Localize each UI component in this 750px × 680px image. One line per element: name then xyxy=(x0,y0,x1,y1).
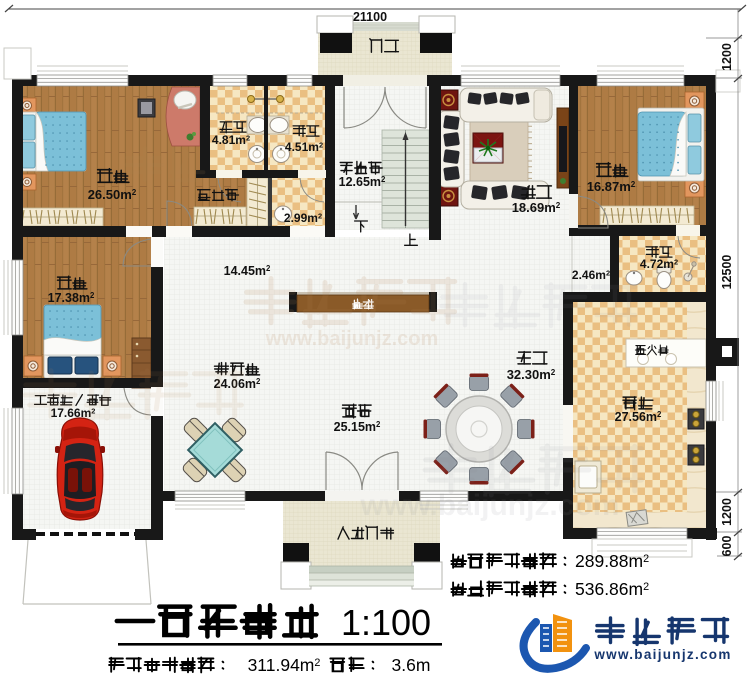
svg-text:21100: 21100 xyxy=(353,10,387,24)
svg-text:12.65m2: 12.65m2 xyxy=(339,175,386,189)
svg-text:2.46m2: 2.46m2 xyxy=(572,268,610,282)
svg-text:311.94m2: 311.94m2 xyxy=(248,655,321,675)
svg-text:289.88m2: 289.88m2 xyxy=(575,551,649,571)
svg-text:3.6m: 3.6m xyxy=(392,655,431,675)
svg-text:2.99m2: 2.99m2 xyxy=(284,211,322,225)
svg-text:32.30m2: 32.30m2 xyxy=(507,367,556,382)
svg-text:14.45m2: 14.45m2 xyxy=(224,264,271,278)
svg-text:17.38m2: 17.38m2 xyxy=(48,291,95,305)
svg-text:16.87m2: 16.87m2 xyxy=(587,179,636,194)
svg-text:600: 600 xyxy=(720,536,734,557)
svg-text:www.baijunjz.com: www.baijunjz.com xyxy=(265,328,439,350)
svg-text:1200: 1200 xyxy=(720,43,734,71)
svg-text:536.86m2: 536.86m2 xyxy=(575,579,649,599)
svg-text:12500: 12500 xyxy=(720,255,734,290)
svg-text:1:100: 1:100 xyxy=(341,602,431,643)
svg-text:www.baijunjz.com: www.baijunjz.com xyxy=(360,489,620,522)
svg-text:18.69m2: 18.69m2 xyxy=(512,200,561,215)
svg-text:27.56m2: 27.56m2 xyxy=(615,410,662,424)
svg-text:www.baijunjz.com: www.baijunjz.com xyxy=(593,647,731,662)
svg-text:4.51m2: 4.51m2 xyxy=(285,140,323,154)
svg-text:4.72m2: 4.72m2 xyxy=(640,257,678,271)
svg-text:26.50m2: 26.50m2 xyxy=(88,187,137,202)
svg-text:4.81m2: 4.81m2 xyxy=(212,133,250,147)
svg-text:1200: 1200 xyxy=(720,498,734,526)
svg-text:25.15m2: 25.15m2 xyxy=(334,420,381,434)
